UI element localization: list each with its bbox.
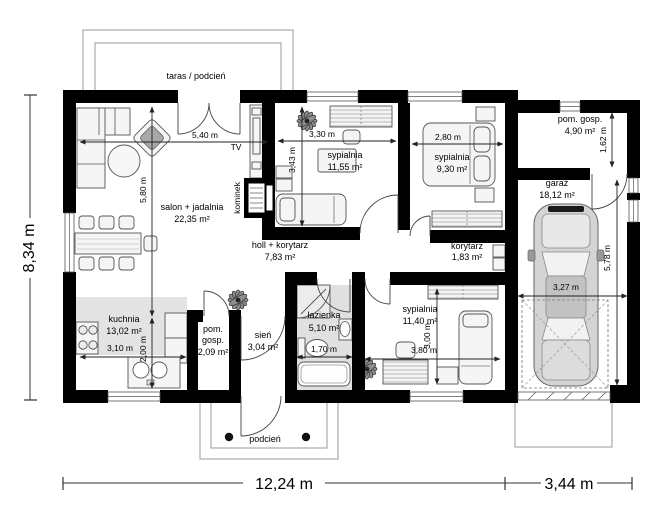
svg-text:2,00 m: 2,00 m bbox=[138, 336, 148, 362]
floorplan-page: taras / podcień salon + jadalnia 22,35 m… bbox=[0, 0, 660, 508]
door-bedroom2 bbox=[410, 216, 430, 236]
garage-label: garaż bbox=[546, 178, 569, 188]
corridor-label: korytarz bbox=[451, 241, 484, 251]
terrace-label: taras / podcień bbox=[166, 71, 225, 81]
kitchen-sink bbox=[128, 357, 180, 388]
utility-room-label: pom. gosp. bbox=[558, 114, 603, 124]
window bbox=[307, 92, 358, 101]
svg-text:5,40 m: 5,40 m bbox=[192, 130, 218, 140]
porch-column bbox=[302, 433, 310, 441]
washbasin bbox=[339, 319, 352, 340]
side-table bbox=[437, 367, 458, 384]
svg-text:5,78 m: 5,78 m bbox=[602, 245, 612, 271]
wardrobe bbox=[432, 211, 502, 227]
fireplace bbox=[248, 183, 273, 213]
single-bed bbox=[459, 311, 492, 384]
nightstand bbox=[476, 107, 495, 121]
window bbox=[108, 392, 160, 401]
terrace-outline bbox=[83, 30, 293, 90]
tv-cabinet bbox=[250, 105, 263, 178]
kitchen-label: kuchnia bbox=[108, 314, 139, 324]
corridor-shelves bbox=[493, 245, 505, 270]
garage-door bbox=[518, 392, 610, 400]
driveway-outline bbox=[515, 403, 612, 447]
porch-column bbox=[225, 433, 233, 441]
door-utility bbox=[204, 291, 229, 316]
porch-label: podcień bbox=[249, 434, 281, 444]
bedroom1-label: sypialnia bbox=[327, 150, 362, 160]
floorplan-drawing: taras / podcień salon + jadalnia 22,35 m… bbox=[0, 0, 660, 508]
svg-text:1,70 m: 1,70 m bbox=[311, 344, 337, 354]
svg-text:1,62 m: 1,62 m bbox=[598, 127, 608, 153]
utility2-area: 2,09 m² bbox=[198, 347, 229, 357]
fireplace-label: kominek bbox=[232, 181, 242, 213]
window bbox=[410, 392, 463, 401]
vestibule-label: sień bbox=[255, 330, 272, 340]
bedroom3-label: sypialnia bbox=[402, 304, 437, 314]
single-bed bbox=[276, 194, 346, 225]
bathroom-label: łazienka bbox=[307, 310, 340, 320]
plant-icon bbox=[228, 290, 249, 311]
bathroom-area: 5,10 m² bbox=[309, 323, 340, 333]
dining-table-set bbox=[75, 216, 157, 270]
utility2-label-2: gosp. bbox=[202, 335, 224, 345]
entry-door bbox=[241, 396, 281, 436]
corridor-area: 1,83 m² bbox=[452, 252, 483, 262]
bathtub bbox=[298, 362, 350, 386]
svg-text:3,44 m: 3,44 m bbox=[545, 476, 594, 493]
bedroom2-label: sypialnia bbox=[434, 152, 469, 162]
living-room-area: 22,35 m² bbox=[174, 214, 210, 224]
kitchen-cabinet bbox=[165, 313, 187, 363]
svg-text:2,80 m: 2,80 m bbox=[435, 132, 461, 142]
svg-text:12,24 m: 12,24 m bbox=[255, 476, 313, 493]
hall-area: 7,83 m² bbox=[265, 252, 296, 262]
chair bbox=[343, 130, 360, 144]
window bbox=[560, 102, 580, 111]
garage-area: 18,12 m² bbox=[539, 190, 575, 200]
window bbox=[629, 200, 638, 222]
desk bbox=[383, 360, 428, 384]
tv-label: TV bbox=[231, 142, 242, 152]
door-garage-utility bbox=[592, 174, 627, 209]
utility2-label-1: pom. bbox=[203, 324, 223, 334]
svg-text:5,80 m: 5,80 m bbox=[138, 177, 148, 203]
svg-text:3,43 m: 3,43 m bbox=[287, 147, 297, 173]
window bbox=[629, 178, 638, 193]
bedroom2-area: 9,30 m² bbox=[437, 164, 468, 174]
svg-text:3,00 m: 3,00 m bbox=[422, 323, 432, 349]
entry-porch-outline bbox=[200, 403, 338, 459]
svg-text:3,10 m: 3,10 m bbox=[107, 343, 133, 353]
shelf bbox=[276, 179, 292, 191]
svg-text:3,30 m: 3,30 m bbox=[309, 129, 335, 139]
window bbox=[65, 213, 74, 272]
door-bedroom1 bbox=[360, 195, 398, 233]
hall-label: holl + korytarz bbox=[252, 240, 309, 250]
svg-text:3,27 m: 3,27 m bbox=[553, 282, 579, 292]
window bbox=[408, 92, 462, 101]
coffee-table bbox=[108, 145, 140, 177]
living-room-label: salon + jadalnia bbox=[161, 202, 224, 212]
bedroom1-area: 11,55 m² bbox=[328, 162, 363, 172]
car bbox=[528, 204, 604, 386]
vestibule-area: 3,04 m² bbox=[248, 342, 279, 352]
bedroom3-area: 11,40 m² bbox=[403, 316, 438, 326]
utility-room-area: 4,90 m² bbox=[565, 126, 596, 136]
nightstand bbox=[475, 188, 494, 202]
svg-text:8,34 m: 8,34 m bbox=[21, 224, 38, 273]
wardrobe bbox=[428, 285, 498, 299]
hob bbox=[76, 322, 98, 354]
kitchen-area: 13,02 m² bbox=[106, 326, 142, 336]
door-bedroom3 bbox=[365, 279, 390, 304]
